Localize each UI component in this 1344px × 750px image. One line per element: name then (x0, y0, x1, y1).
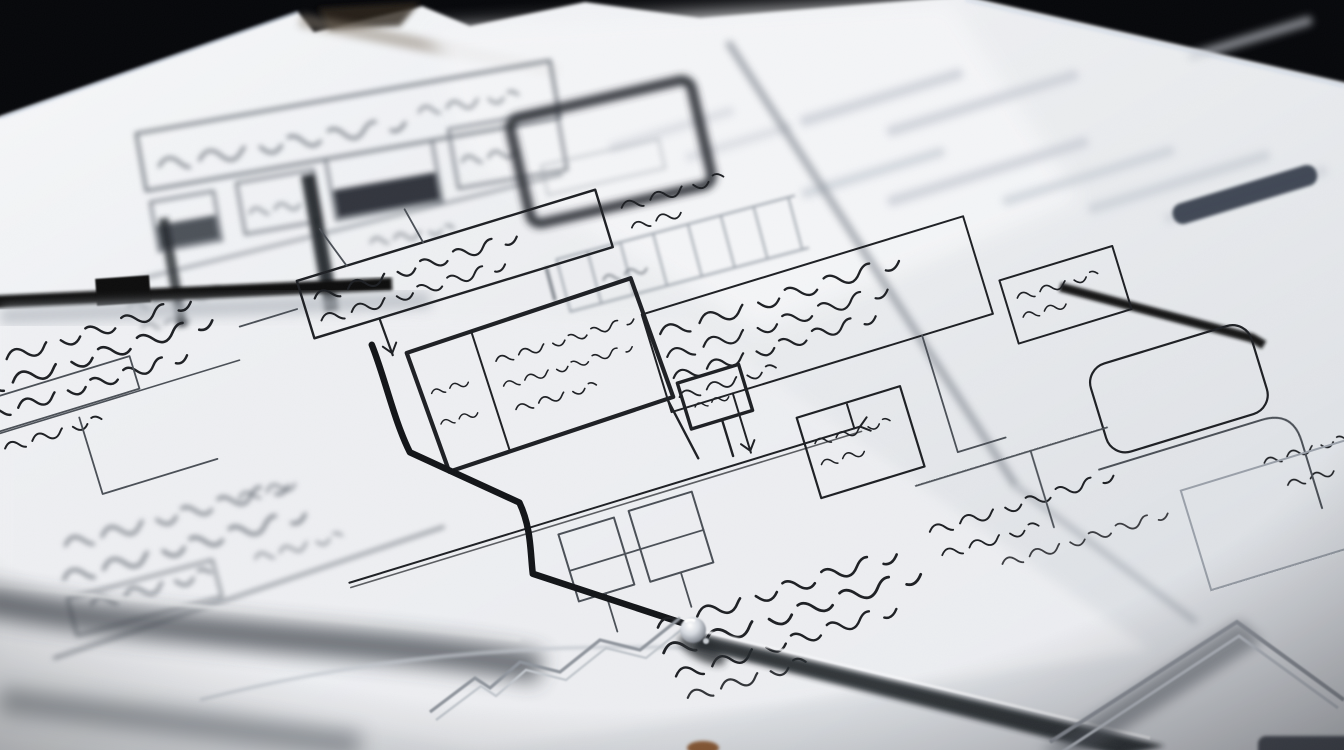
photo-canvas: Close-up photograph, shot at a steep ang… (0, 0, 1344, 750)
photo-of-sketch-papers: Close-up photograph, shot at a steep ang… (0, 0, 1344, 750)
film-grain (0, 0, 1344, 750)
